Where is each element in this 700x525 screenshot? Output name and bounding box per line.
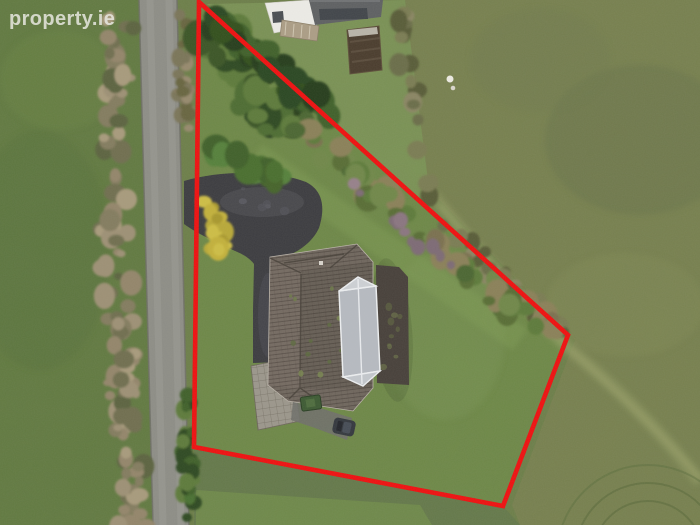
photo-grain	[0, 0, 700, 525]
aerial-property-photo[interactable]: property.ie	[0, 0, 700, 525]
aerial-photo-canvas	[0, 0, 700, 525]
